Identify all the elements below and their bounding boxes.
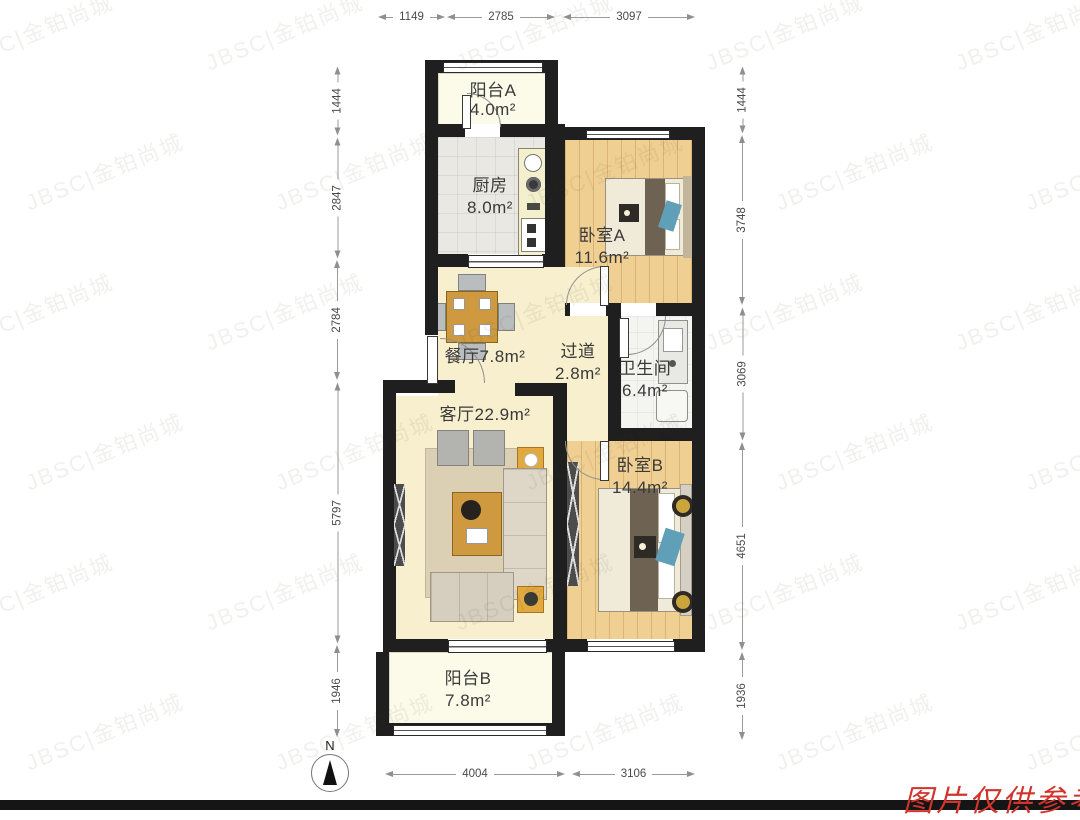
- room-label-bedroom-a: 卧室A 11.6m²: [557, 225, 647, 269]
- bathroom-sink-icon: [663, 328, 683, 352]
- room-name: 阳台B: [418, 668, 518, 690]
- bathroom-door-opening: [621, 303, 656, 316]
- dim-right-1: 1444: [735, 66, 749, 133]
- watermark-text: JBSC|金铂尚城: [20, 405, 188, 498]
- armchair: [473, 430, 505, 466]
- wall-lamp-icon: [672, 591, 694, 613]
- watermark-text: JBSC|金铂尚城: [1020, 685, 1080, 778]
- dim-left-4: 5797: [330, 382, 344, 643]
- dim-top-3: 3097: [563, 10, 695, 24]
- compass-circle: [311, 754, 349, 792]
- dim-right-2: 3748: [735, 135, 749, 305]
- bed-a-tray-dot: [624, 210, 630, 216]
- dining-chair: [458, 274, 486, 291]
- balcony-a-window: [443, 62, 543, 73]
- wall: [545, 60, 558, 124]
- watermark-text: JBSC|金铂尚城: [0, 545, 118, 638]
- kitchen-appliance-knob: [527, 238, 536, 247]
- armchair: [437, 430, 469, 466]
- dining-chair: [498, 303, 515, 331]
- bedroom-a-door-leaf: [600, 266, 609, 306]
- watermark-text: JBSC|金铂尚城: [770, 405, 938, 498]
- dim-right-5: 1936: [735, 652, 749, 740]
- room-name: 卧室B: [595, 455, 685, 477]
- kitchen-sliding-door: [468, 255, 544, 268]
- room-area: 7.8m²: [480, 347, 526, 366]
- wall: [656, 303, 705, 316]
- north-arrow-icon: [323, 760, 337, 785]
- watermark-text: JBSC|金铂尚城: [1020, 405, 1080, 498]
- room-label-dining: 餐厅7.8m²: [420, 346, 550, 368]
- watermark-text: JBSC|金铂尚城: [700, 545, 868, 638]
- loveseat: [430, 572, 514, 622]
- wall: [608, 428, 705, 441]
- coffee-table-decor: [461, 500, 481, 520]
- room-area: 4.0m²: [443, 99, 543, 121]
- watermark-text: JBSC|金铂尚城: [0, 265, 118, 358]
- wall: [425, 254, 468, 267]
- dim-right-3: 3069: [735, 307, 749, 440]
- room-name: 过道: [548, 341, 608, 363]
- watermark-text: JBSC|金铂尚城: [20, 125, 188, 218]
- room-area: 8.0m²: [440, 197, 540, 219]
- room-area: 11.6m²: [557, 247, 647, 269]
- wall: [545, 639, 587, 652]
- bed-b-tray-dot: [639, 543, 646, 550]
- dim-top-1: 1149: [378, 10, 445, 24]
- plate-icon: [453, 298, 465, 310]
- dim-bottom-1: 4004: [385, 767, 565, 781]
- balcony-b-sliding-door: [448, 640, 547, 653]
- plate-icon: [479, 298, 491, 310]
- room-name: 卫生间: [605, 358, 685, 380]
- watermark-text: JBSC|金铂尚城: [700, 265, 868, 358]
- side-table-decor: [524, 453, 538, 467]
- wall: [552, 652, 565, 723]
- side-table-decor: [524, 592, 538, 606]
- room-area: 14.4m²: [595, 477, 685, 499]
- room-name: 客厅: [440, 405, 475, 424]
- watermark-text: JBSC|金铂尚城: [20, 685, 188, 778]
- radiator-icon: [567, 462, 579, 586]
- wall: [425, 124, 465, 137]
- north-compass-icon: N: [311, 738, 349, 792]
- watermark-text: JBSC|金铂尚城: [700, 0, 868, 77]
- kitchen-appliance-knob: [527, 224, 536, 233]
- room-label-hallway: 过道 2.8m²: [548, 341, 608, 385]
- room-label-bedroom-b: 卧室B 14.4m²: [595, 455, 685, 499]
- room-area: 22.9m²: [475, 405, 531, 424]
- watermark-text: JBSC|金铂尚城: [950, 265, 1080, 358]
- dim-left-2: 2847: [330, 137, 344, 258]
- room-label-balcony-b: 阳台B 7.8m²: [418, 668, 518, 712]
- room-label-living: 客厅22.9m²: [410, 404, 560, 426]
- balcony-b-window: [393, 725, 547, 736]
- floor-plan-canvas: 阳台A 4.0m² 厨房 8.0m² 卧室A 11.6m² 餐厅7.8m² 过道…: [0, 0, 1080, 810]
- plate-icon: [453, 324, 465, 336]
- plate-icon: [479, 324, 491, 336]
- watermark-text: JBSC|金铂尚城: [0, 0, 118, 77]
- watermark-text: JBSC|金铂尚城: [270, 125, 438, 218]
- kitchen-sink-icon: [524, 154, 542, 172]
- dim-top-2: 2785: [447, 10, 555, 24]
- dim-left-1: 1444: [330, 66, 344, 135]
- watermark-text: JBSC|金铂尚城: [1020, 125, 1080, 218]
- dim-bottom-2: 3106: [572, 767, 695, 781]
- wall: [692, 140, 705, 652]
- room-area-balcony-a: 4.0m²: [443, 99, 543, 121]
- bedroom-b-window: [587, 641, 675, 652]
- watermark-text: JBSC|金铂尚城: [950, 545, 1080, 638]
- radiator-icon: [394, 484, 405, 566]
- room-label-bathroom: 卫生间 6.4m²: [605, 358, 685, 402]
- wall: [425, 137, 438, 254]
- watermark-text: JBSC|金铂尚城: [770, 125, 938, 218]
- room-name: 餐厅: [445, 347, 480, 366]
- room-name: 卧室A: [557, 225, 647, 247]
- bathroom-door-leaf: [619, 318, 629, 358]
- bedroom-a-window: [586, 130, 670, 139]
- room-area: 6.4m²: [605, 380, 685, 402]
- wall: [425, 267, 438, 335]
- wall: [673, 639, 705, 652]
- watermark-text: JBSC|金铂尚城: [770, 685, 938, 778]
- coffee-table-tray: [466, 528, 488, 544]
- room-area: 7.8m²: [418, 690, 518, 712]
- dim-left-3: 2784: [330, 260, 344, 380]
- reference-notice-text: 图片仅供参考: [903, 776, 1080, 820]
- bed-a-headboard: [683, 176, 692, 258]
- north-label: N: [311, 738, 349, 753]
- room-area: 2.8m²: [548, 363, 608, 385]
- watermark-text: JBSC|金铂尚城: [950, 0, 1080, 77]
- room-label-kitchen: 厨房 8.0m²: [440, 175, 540, 219]
- dim-right-4: 4651: [735, 442, 749, 650]
- wall: [383, 639, 448, 652]
- room-name: 厨房: [440, 175, 540, 197]
- dim-left-5: 1946: [330, 645, 344, 737]
